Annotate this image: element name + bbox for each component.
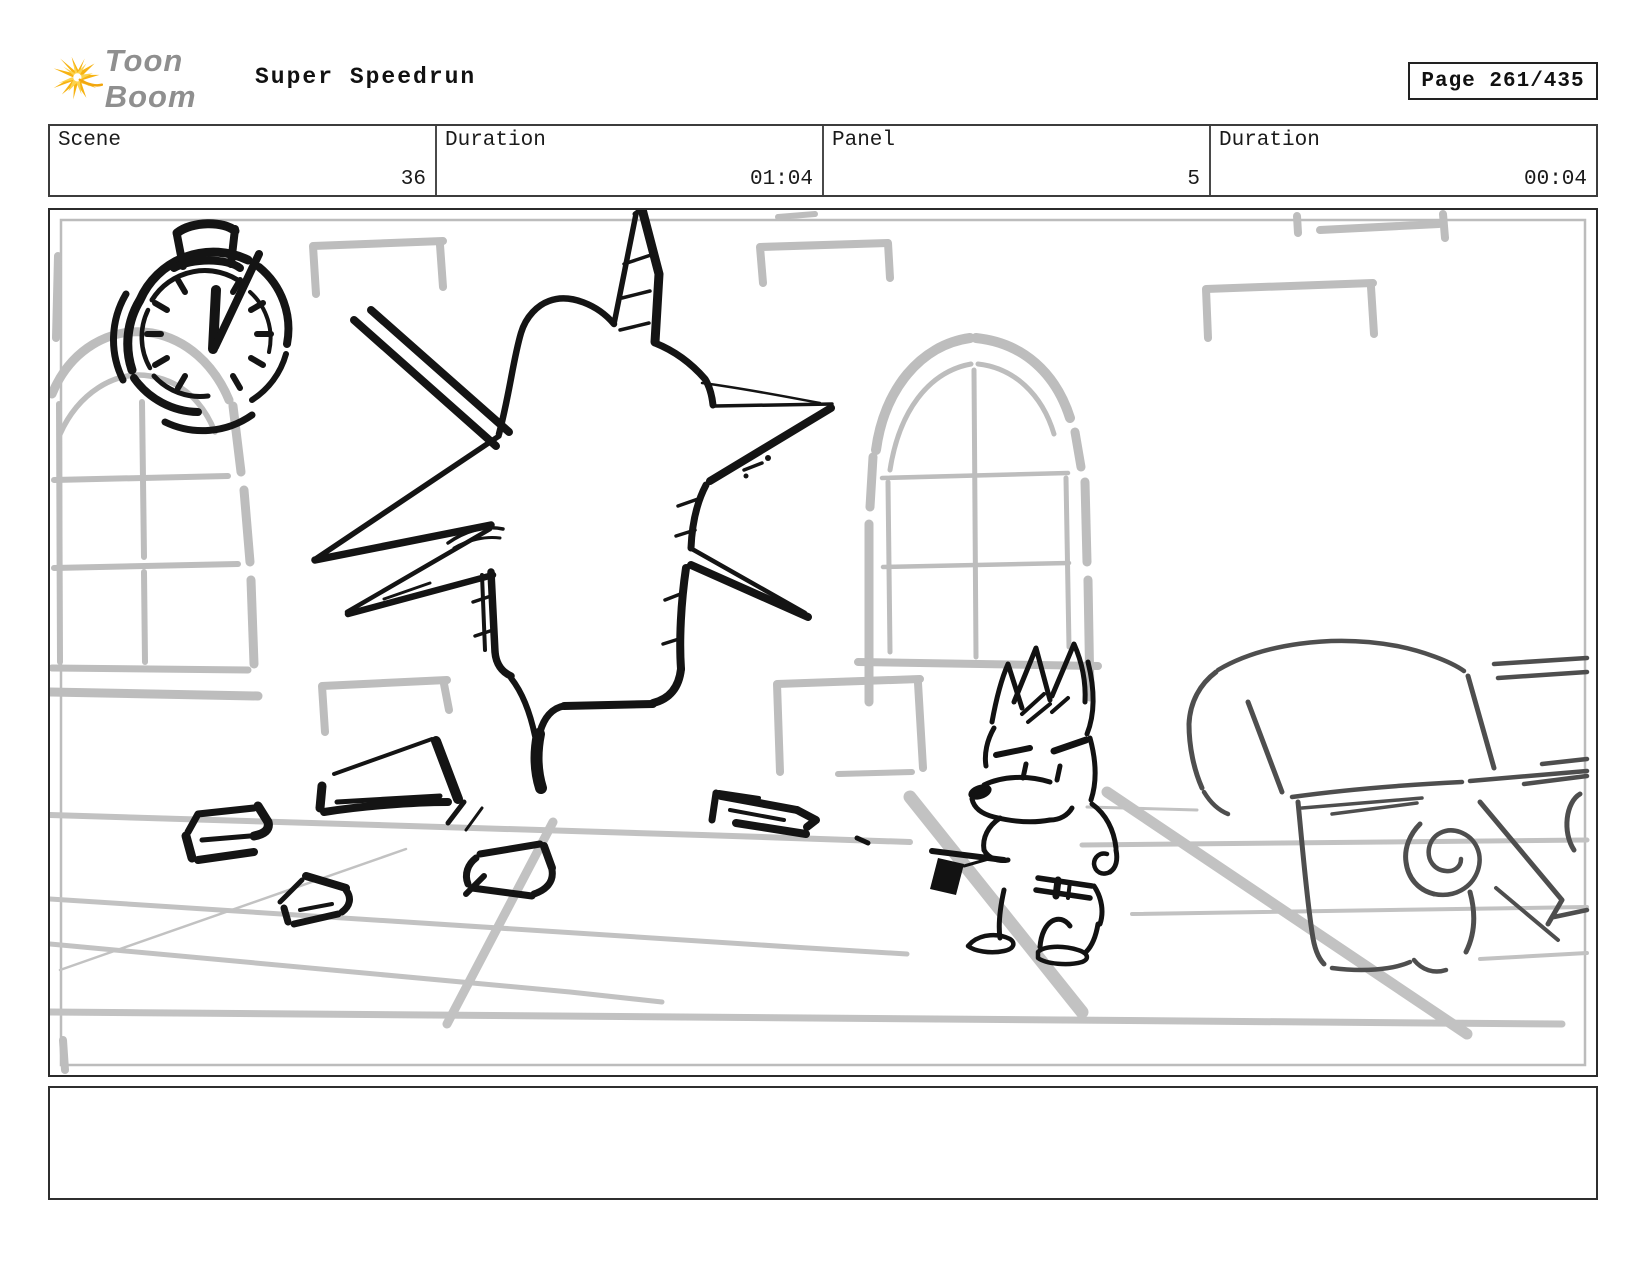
panel-duration-label: Duration	[1219, 129, 1320, 152]
bricks-sketch	[56, 214, 1445, 1070]
project-title: Super Speedrun	[255, 64, 476, 90]
armchair-sketch	[1189, 641, 1587, 972]
panel-info-table: Scene 36 Duration 01:04 Panel 5 Duration…	[48, 124, 1598, 197]
scene-value: 36	[401, 168, 426, 191]
fist	[1094, 854, 1110, 874]
foot	[968, 935, 1013, 952]
brand-text: Toon Boom	[105, 43, 252, 115]
mallet-head	[930, 858, 964, 895]
panel-duration-value: 00:04	[1524, 168, 1587, 191]
belt	[1038, 878, 1092, 886]
panel-label: Panel	[832, 129, 895, 152]
caption-box	[48, 1086, 1598, 1200]
character-sketch	[857, 644, 1117, 964]
storyboard-sketch	[50, 210, 1596, 1075]
panel-value: 5	[1187, 168, 1200, 191]
wall-hole-sketch	[315, 210, 832, 788]
scene-duration-cell: Duration 01:04	[437, 126, 824, 195]
foot	[1038, 947, 1087, 964]
panel-cell: Panel 5	[824, 126, 1211, 195]
page-header: Toon Boom Super Speedrun Page 261/435	[48, 50, 1598, 110]
stopwatch-sketch	[114, 224, 289, 431]
toonboom-starburst-icon	[52, 52, 103, 106]
impact-speed-line	[371, 310, 509, 432]
eye	[1057, 766, 1060, 780]
angry-brow	[996, 748, 1030, 755]
panel-duration-cell: Duration 00:04	[1211, 126, 1596, 195]
page-number-badge: Page 261/435	[1408, 62, 1598, 100]
scene-duration-label: Duration	[445, 129, 546, 152]
angry-brow	[1054, 740, 1086, 751]
storyboard-panel	[48, 208, 1598, 1077]
window-left-sketch	[50, 332, 258, 696]
scene-cell: Scene 36	[50, 126, 437, 195]
floor-lines	[50, 792, 1587, 1034]
toonboom-logo: Toon Boom	[52, 52, 252, 106]
dripping-crack	[537, 734, 541, 788]
window-center-sketch	[858, 338, 1098, 702]
scene-duration-value: 01:04	[750, 168, 813, 191]
scene-label: Scene	[58, 129, 121, 152]
